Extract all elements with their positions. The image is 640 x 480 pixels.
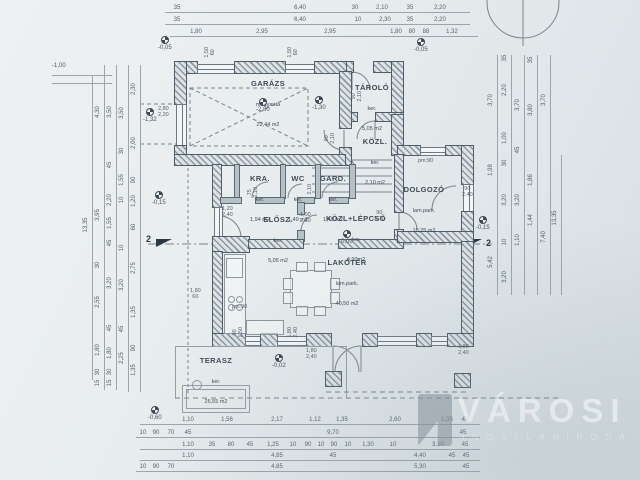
dim-label: 90 (131, 177, 137, 184)
dim-label: 90 (331, 442, 338, 448)
partition-wall (221, 198, 241, 203)
elevation-marker: -2,80 (256, 98, 270, 113)
opening-dim: 901,50 (232, 327, 245, 338)
dim-label: 3,20 (502, 271, 508, 283)
dim-label: 1,10 (182, 417, 194, 423)
wall-segment (175, 62, 186, 104)
dim-label: 80 (409, 29, 416, 35)
dim-label: 10 (140, 430, 147, 436)
elevation-icon (479, 216, 487, 224)
dim-label: 2,10 (376, 5, 388, 11)
dim-label: 90 (153, 464, 160, 470)
room-kozl: KÖZL.ker.2,10 m2 (363, 130, 388, 190)
wall-segment (395, 155, 403, 212)
elevation-marker: -0,05 (158, 36, 172, 51)
dim-label: 1,55 (119, 174, 125, 186)
dim-label: 6,40 (294, 5, 306, 11)
dim-label: 3,80 (528, 104, 534, 116)
dim-label: 90 (305, 442, 312, 448)
dim-label: 3,70 (515, 99, 521, 111)
chair (296, 262, 308, 272)
grade-line (52, 75, 112, 76)
elevation-marker: -1,32 (143, 108, 157, 123)
floor-plan-sheet: GARÁZSműgyanta22,44 m2 TÁROLÓker.5,05 m2… (0, 0, 640, 480)
elevation-icon (417, 38, 425, 46)
opening-dim: 1,5060 (204, 47, 217, 58)
wall-segment (462, 146, 473, 184)
dim-label: 30 (119, 148, 125, 155)
opening-dim: 902,10 (324, 133, 337, 144)
elevation-icon (259, 98, 267, 106)
elevation-marker: 0,00 (341, 230, 353, 245)
wall-segment (307, 334, 331, 346)
chair (283, 292, 293, 304)
dim-label: 2,17 (271, 417, 283, 423)
dim-label: 2,25 (119, 352, 125, 364)
dim-label: 13,35 (83, 217, 89, 232)
watermark: VÁROSI INGATLANIRODA (416, 390, 638, 454)
opening-dim: 902,10 (351, 91, 364, 102)
opening-dim: 1,002,10 (300, 212, 311, 225)
agency-logo-icon (418, 394, 452, 446)
room-terasz: TERASZker.26,55 m2 (200, 349, 232, 409)
dim-line (550, 55, 551, 295)
dim-label: 4,85 (271, 464, 283, 470)
opening-dim: 1,802,40 (306, 348, 317, 361)
dim-label: 6,40 (294, 17, 306, 23)
dim-label: 1,80 (390, 29, 402, 35)
dim-label: 45 (119, 326, 125, 333)
kitchen-cabinet (246, 320, 284, 335)
dim-label: 1,44 (528, 214, 534, 226)
dim-label: 1,10 (182, 453, 194, 459)
dining-table (290, 270, 332, 308)
dim-label: 1,98 (488, 164, 494, 176)
dim-label: 5,42 (488, 256, 494, 268)
dim-label: 3,95 (95, 209, 101, 221)
wall-segment (398, 146, 420, 155)
dim-label: 30 (352, 5, 359, 11)
dim-label: 1,35 (131, 306, 137, 318)
dim-label: 3,70 (541, 94, 547, 106)
wall-segment (213, 165, 221, 207)
opening-dim: 1,8060 (190, 288, 201, 301)
section-arrow-left (156, 239, 172, 247)
dim-line (140, 65, 141, 392)
elevation-icon (343, 230, 351, 238)
dim-label: 2,95 (324, 29, 336, 35)
opening-dim: 752,10 (247, 187, 260, 198)
wall-segment (392, 62, 403, 115)
wall-segment (417, 334, 431, 346)
wall-segment (347, 62, 353, 72)
dim-label: 1,25 (267, 442, 279, 448)
window (197, 64, 237, 74)
room-dolgozo: DOLGOZÓlam.park.10,25 m2 (404, 178, 445, 238)
dim-label: 7,40 (541, 231, 547, 243)
wall-segment (261, 334, 277, 346)
dim-label: 1,20 (131, 195, 137, 207)
chair (283, 278, 293, 290)
dim-line (136, 471, 480, 472)
dim-label: 15 (95, 380, 101, 387)
dim-label: 1,35 (336, 417, 348, 423)
dim-label: 35 (407, 5, 414, 11)
dim-label: 3,50 (119, 107, 125, 119)
dim-label: 88 (423, 29, 430, 35)
dim-label: 35 (528, 57, 534, 64)
dim-label: 2,95 (256, 29, 268, 35)
hob-burner (236, 296, 243, 303)
partition-wall (350, 165, 355, 198)
dim-line (140, 460, 480, 461)
dim-line (511, 55, 512, 295)
dim-label: 35 (174, 17, 181, 23)
pm-label: pm:90 (418, 158, 433, 164)
dim-label: 2,20 (107, 194, 113, 206)
opening-dim: 2,802,20 (158, 106, 169, 119)
section-marker-right: 2 (486, 238, 491, 248)
hob-burner (228, 296, 235, 303)
dim-label: 3,70 (488, 94, 494, 106)
dim-label: 60 (131, 224, 137, 231)
dim-label: 45 (247, 442, 254, 448)
dim-label: 35 (502, 55, 508, 62)
dim-label: 3,20 (119, 279, 125, 291)
dim-label: 3,20 (515, 194, 521, 206)
dim-label: 10 (119, 197, 125, 204)
dim-label: 3,20 (502, 194, 508, 206)
dim-label: 1,80 (107, 347, 113, 359)
window (377, 336, 419, 346)
room-lakoter: LAKÓTÉRlam.park.40,50 m2 (327, 251, 366, 311)
dim-label: 1,56 (221, 417, 233, 423)
dim-label: 2,30 (379, 17, 391, 23)
dim-label: 35 (407, 17, 414, 23)
dim-label: 10 (119, 245, 125, 252)
dim-label: 2,30 (131, 83, 137, 95)
dim-label: 30 (502, 160, 508, 167)
kitchen-sink (226, 258, 243, 278)
dim-line (128, 65, 129, 392)
dim-label: 10 (140, 464, 147, 470)
dim-label: 70 (168, 430, 175, 436)
dim-label: 10 (345, 442, 352, 448)
dim-label: 2,20 (434, 5, 446, 11)
wall-segment (175, 155, 345, 165)
agency-subtitle: INGATLANIRODA (462, 432, 632, 442)
dim-label: 10 (390, 442, 397, 448)
dim-label: 45 (463, 464, 470, 470)
dim-label: 1,55 (107, 217, 113, 229)
dim-label: 13,35 (552, 210, 558, 225)
elevation-icon (275, 354, 283, 362)
dim-label: 35 (174, 5, 181, 11)
dim-label: 45 (107, 162, 113, 169)
dim-label: 90 (153, 430, 160, 436)
room-elosz: ELŐSZ.ker.5,05 m2 (263, 208, 293, 268)
wall-corner (213, 237, 249, 252)
dim-label: 2,20 (502, 84, 508, 96)
dim-label: 45 (107, 325, 113, 332)
dim-label: 2,55 (95, 296, 101, 308)
elevation-marker: -1,00 (52, 63, 66, 69)
dim-label: 5,30 (414, 464, 426, 470)
dim-label: 10 (502, 239, 508, 246)
chair (314, 306, 326, 316)
opening-dim: 902,40 (462, 186, 473, 199)
dim-label: 1,80 (95, 344, 101, 356)
window (285, 64, 317, 74)
opening-dim: 1,802,40 (287, 327, 300, 338)
dim-label: 35 (209, 442, 216, 448)
dim-label: 1,00 (502, 132, 508, 144)
dim-label: 1,35 (131, 364, 137, 376)
wall-segment (363, 334, 377, 346)
dim-label: 45 (515, 147, 521, 154)
dim-line (524, 55, 525, 295)
dim-label: 30 (107, 369, 113, 376)
dim-label: 9,70 (327, 430, 339, 436)
dim-label: 1,32 (446, 29, 458, 35)
dim-label: 30 (95, 369, 101, 376)
porch-pier (455, 374, 470, 387)
dim-label: 2,75 (131, 262, 137, 274)
elevation-marker: -0,60 (148, 406, 162, 421)
wall-segment (462, 242, 473, 334)
dim-label: 30 (95, 262, 101, 269)
dim-line (497, 55, 498, 295)
dim-label: 45 (185, 430, 192, 436)
dim-label: 1,10 (182, 442, 194, 448)
dim-label: 3,50 (107, 106, 113, 118)
dim-line (104, 65, 105, 390)
opening-dim: 2,10 (307, 184, 313, 195)
opening-dim: 1,5060 (287, 47, 300, 58)
dim-label: 2,20 (434, 17, 446, 23)
dim-label: 2,60 (389, 417, 401, 423)
dim-label: 1,86 (528, 174, 534, 186)
dim-line (165, 12, 470, 13)
dim-label: 10 (290, 442, 297, 448)
dim-label: 10 (318, 442, 325, 448)
elevation-marker: -0,02 (272, 354, 286, 369)
dim-line (92, 75, 93, 380)
chair (296, 306, 308, 316)
elevation-marker: -1,30 (312, 96, 326, 111)
dim-label: 1,30 (362, 442, 374, 448)
chair (314, 262, 326, 272)
elevation-icon (161, 36, 169, 44)
elevation-icon (155, 191, 163, 199)
dim-label: 70 (168, 464, 175, 470)
dim-label: 1,10 (515, 234, 521, 246)
window (420, 147, 448, 156)
partition-wall (281, 165, 285, 198)
dim-label: 90 (131, 345, 137, 352)
room-tarolo: TÁROLÓker.5,05 m2 (355, 76, 389, 136)
dim-label: 45 (330, 453, 337, 459)
elevation-marker: -0,15 (152, 191, 166, 206)
dim-line (537, 55, 538, 295)
opening-dim: 902,10 (374, 210, 385, 223)
dim-label: 1,80 (190, 29, 202, 35)
elevation-marker: -0,05 (414, 38, 428, 53)
partition-wall (235, 165, 239, 198)
dim-label: 3,20 (107, 277, 113, 289)
north-circle (487, 0, 559, 38)
elevation-icon (315, 96, 323, 104)
dim-label: 4,85 (271, 453, 283, 459)
dim-line (116, 65, 117, 390)
wall-segment (213, 252, 222, 334)
dim-line (165, 24, 470, 25)
dim-label: 2,00 (131, 137, 137, 149)
opening-dim: 1,202,40 (222, 206, 233, 219)
elevation-icon (151, 406, 159, 414)
dim-label: 15 (107, 380, 113, 387)
opening-dim: 1,802,40 (458, 344, 469, 357)
section-marker-left: 2 (146, 234, 151, 244)
dim-label: 80 (228, 442, 235, 448)
dim-label: 4,30 (95, 106, 101, 118)
elevation-marker: -0,15 (476, 216, 490, 231)
dim-label: 10 (355, 17, 362, 23)
pm-label: pm:90 (232, 304, 247, 310)
grade-line (52, 83, 112, 84)
agency-name: VÁROSI (458, 392, 627, 430)
dim-line (561, 155, 562, 295)
garage-door-opening (176, 104, 187, 148)
dim-line (170, 36, 478, 37)
dim-label: 45 (107, 240, 113, 247)
dim-label: 1,12 (309, 417, 321, 423)
wall-segment (340, 72, 351, 128)
elevation-icon (146, 108, 154, 116)
